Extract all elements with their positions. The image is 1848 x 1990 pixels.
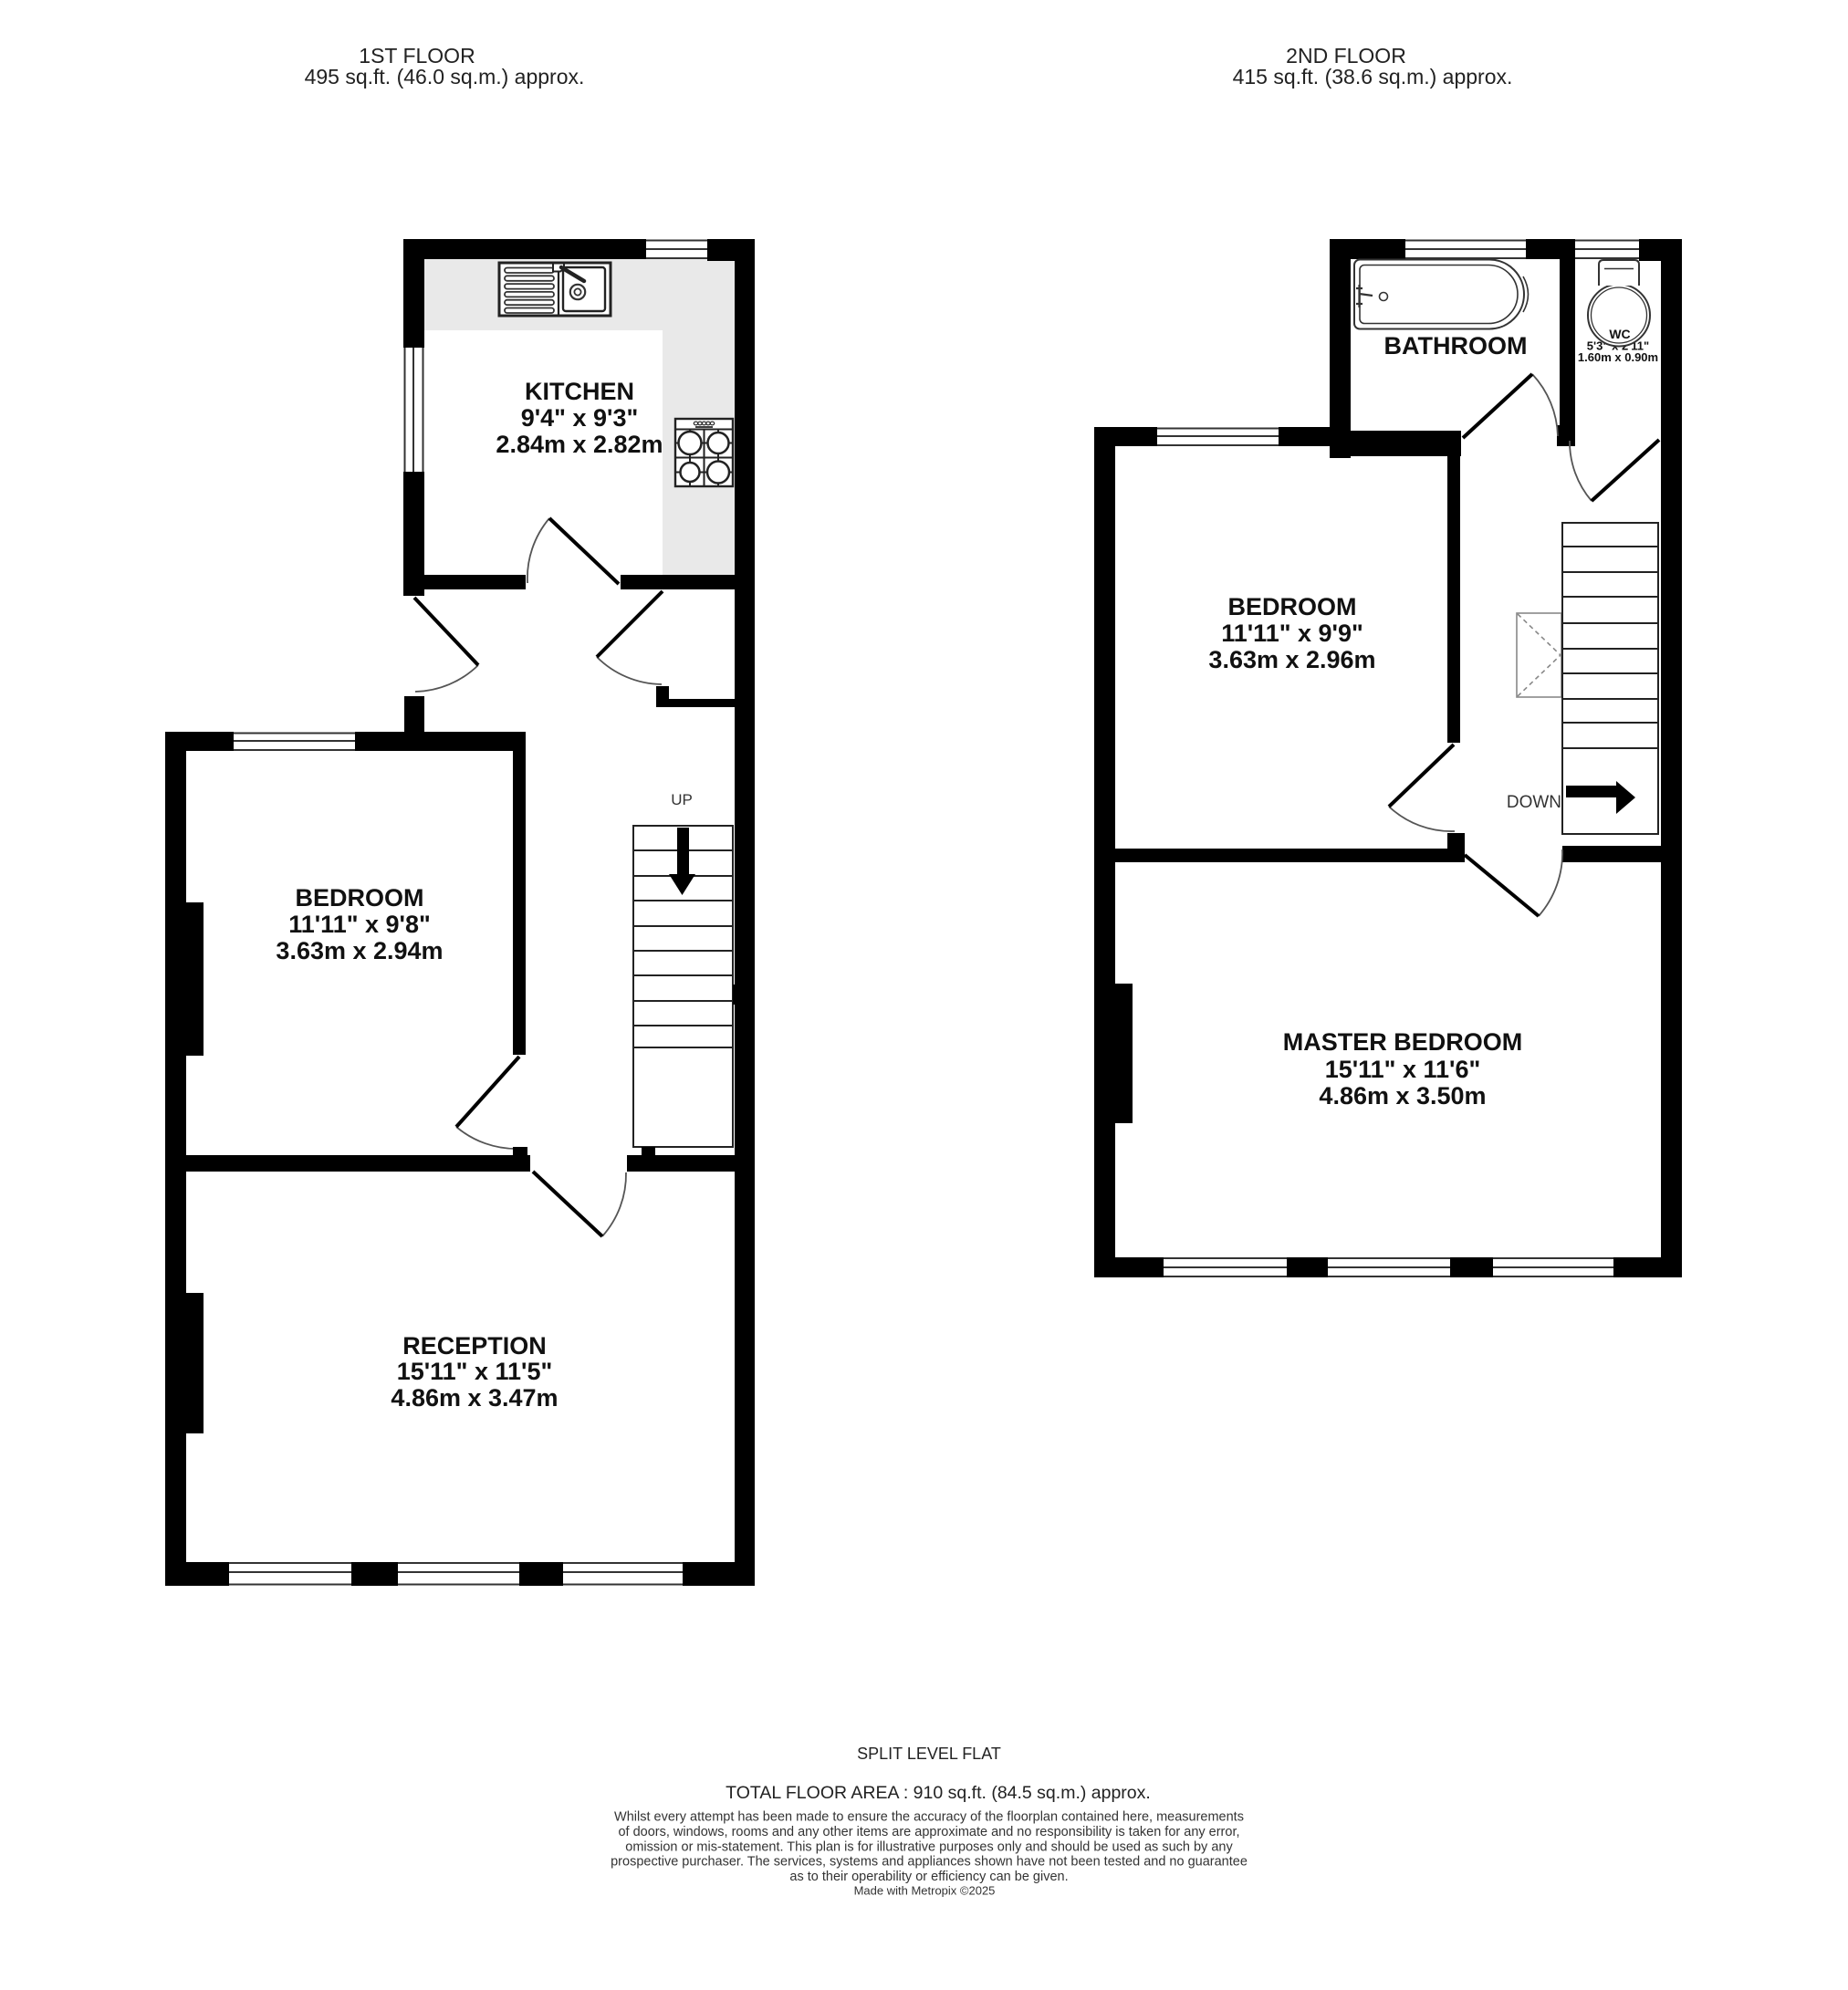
svg-text:2.84m x 2.82m: 2.84m x 2.82m — [496, 431, 663, 458]
svg-text:WC: WC — [1609, 327, 1630, 341]
svg-text:4.86m x 3.47m: 4.86m x 3.47m — [391, 1384, 558, 1412]
svg-text:BEDROOM: BEDROOM — [1228, 593, 1357, 620]
svg-text:1.60m x 0.90m: 1.60m x 0.90m — [1578, 350, 1658, 364]
svg-text:omission or mis-statement. Thi: omission or mis-statement. This plan is … — [625, 1839, 1233, 1854]
svg-text:9'4" x 9'3": 9'4" x 9'3" — [521, 404, 639, 432]
svg-text:15'11" x 11'6": 15'11" x 11'6" — [1325, 1056, 1481, 1083]
svg-text:15'11" x 11'5": 15'11" x 11'5" — [397, 1358, 553, 1385]
svg-text:495 sq.ft. (46.0 sq.m.) approx: 495 sq.ft. (46.0 sq.m.) approx. — [305, 65, 585, 89]
svg-text:Made with Metropix ©2025: Made with Metropix ©2025 — [854, 1884, 996, 1898]
svg-text:UP: UP — [671, 791, 693, 808]
svg-text:Whilst every attempt has been: Whilst every attempt has been made to en… — [614, 1810, 1244, 1825]
svg-text:BATHROOM: BATHROOM — [1384, 332, 1528, 359]
svg-text:RECEPTION: RECEPTION — [402, 1332, 547, 1360]
svg-text:BEDROOM: BEDROOM — [296, 884, 424, 912]
svg-text:SPLIT LEVEL FLAT: SPLIT LEVEL FLAT — [857, 1745, 1001, 1763]
svg-text:TOTAL FLOOR AREA : 910 sq.ft.: TOTAL FLOOR AREA : 910 sq.ft. (84.5 sq.m… — [726, 1783, 1151, 1803]
svg-text:as to their operability or eff: as to their operability or efficiency ca… — [789, 1870, 1068, 1884]
svg-text:3.63m x 2.96m: 3.63m x 2.96m — [1208, 646, 1375, 673]
svg-text:of doors, windows, rooms and a: of doors, windows, rooms and any other i… — [618, 1825, 1239, 1839]
svg-text:11'11" x 9'9": 11'11" x 9'9" — [1221, 620, 1363, 647]
svg-text:MASTER BEDROOM: MASTER BEDROOM — [1283, 1028, 1523, 1056]
svg-text:DOWN: DOWN — [1507, 793, 1561, 812]
svg-text:11'11" x 9'8": 11'11" x 9'8" — [288, 911, 431, 938]
svg-text:4.86m x 3.50m: 4.86m x 3.50m — [1319, 1082, 1486, 1110]
svg-text:prospective purchaser. The ser: prospective purchaser. The services, sys… — [611, 1855, 1248, 1870]
svg-text:415 sq.ft. (38.6 sq.m.) approx: 415 sq.ft. (38.6 sq.m.) approx. — [1233, 65, 1513, 89]
svg-text:KITCHEN: KITCHEN — [525, 378, 634, 405]
svg-text:3.63m x 2.94m: 3.63m x 2.94m — [276, 937, 443, 964]
